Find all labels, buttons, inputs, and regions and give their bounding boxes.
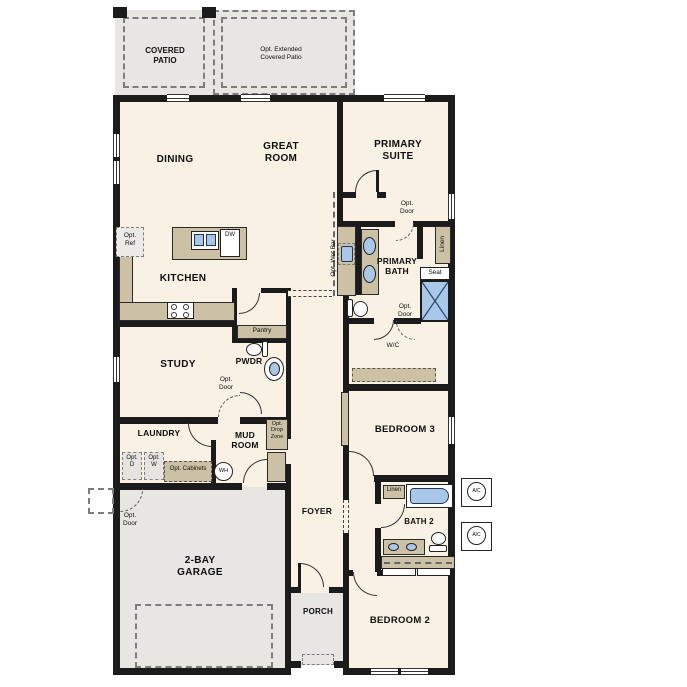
label-pantry: Pantry — [238, 327, 286, 335]
label-opt-door: Opt. Door — [392, 200, 422, 216]
window — [113, 357, 120, 382]
mud-room-bench — [267, 452, 286, 482]
room-label-foyer: FOYER — [287, 506, 347, 516]
toilet — [431, 532, 446, 545]
wall — [343, 668, 455, 675]
floor-plan: DW WH A/C A/C — [0, 0, 687, 687]
room-label-study: STUDY — [143, 359, 213, 371]
wall — [343, 384, 455, 391]
toilet — [353, 301, 368, 317]
wall — [113, 320, 235, 327]
wall — [377, 192, 386, 198]
wall — [334, 661, 345, 668]
wall — [113, 668, 291, 675]
wall — [286, 464, 291, 485]
wall — [374, 475, 455, 482]
room-label-bath-2: BATH 2 — [394, 517, 444, 527]
water-heater-label: WH — [219, 468, 228, 474]
wall — [417, 227, 423, 259]
garage-opt-outline — [135, 604, 273, 668]
label-opt-door: Opt. Door — [390, 303, 420, 319]
label-opt-wet-bar: Opt. Wet Bar — [330, 228, 338, 288]
room-label-great-room: GREAT ROOM — [246, 141, 316, 165]
wall — [343, 192, 356, 198]
label-opt-cabinets: Opt. Cabinets — [165, 466, 211, 473]
shower — [420, 280, 450, 322]
label-opt-door: Opt. Door — [114, 512, 146, 528]
door-leaf — [376, 170, 379, 192]
cooktop — [167, 302, 194, 319]
label-opt-washer: Opt. W — [144, 455, 164, 469]
closet-rod — [384, 562, 452, 564]
label-opt-ref: Opt. Ref — [118, 232, 142, 248]
room-label-dining: DINING — [140, 154, 210, 166]
window — [371, 668, 398, 675]
closet-slider-door — [417, 568, 451, 576]
window — [448, 194, 455, 219]
room-label-bedroom-2: BEDROOM 2 — [353, 615, 447, 626]
bathtub-basin — [410, 488, 449, 504]
label-opt-dryer: Opt. D — [122, 455, 142, 469]
ac-unit-icon: A/C — [467, 482, 486, 501]
wall — [337, 95, 343, 227]
sink-basin — [206, 234, 216, 246]
closet-shelf — [352, 368, 436, 382]
room-label-covered-patio: COVERED PATIO — [130, 46, 200, 65]
window — [401, 668, 428, 675]
room-label-bedroom-3: BEDROOM 3 — [358, 424, 452, 435]
window — [113, 161, 120, 184]
wall — [375, 482, 381, 504]
window — [167, 94, 189, 102]
toilet — [246, 343, 262, 356]
dishwasher-label: DW — [220, 232, 240, 239]
vanity-sink — [406, 543, 417, 551]
wall — [343, 533, 349, 675]
vanity-sink — [363, 237, 376, 255]
window — [384, 94, 425, 102]
shower-glass — [422, 282, 448, 320]
room-label-opt-extended-patio: Opt. Extended Covered Patio — [233, 46, 329, 62]
vanity-sink — [388, 543, 399, 551]
sink-basin — [194, 234, 204, 246]
room-label-primary-suite: PRIMARY SUITE — [363, 139, 433, 163]
wall — [286, 288, 291, 417]
cased-opening — [343, 500, 349, 533]
toilet — [262, 341, 268, 357]
patio-post — [113, 7, 127, 18]
opt-door-landing-outline — [88, 488, 114, 514]
patio-post — [202, 7, 216, 18]
label-opt-door: Opt. Door — [210, 376, 242, 392]
cased-opening — [288, 290, 332, 297]
room-label-mud-room: MUD ROOM — [219, 430, 271, 450]
label-linen: Linen — [439, 224, 447, 264]
label-opt-drop-zone: Opt. Drop Zone — [266, 421, 288, 440]
ac-label: A/C — [472, 489, 480, 495]
sink-basin — [269, 362, 280, 376]
room-label-laundry: LAUNDRY — [122, 428, 196, 438]
door-leaf — [298, 563, 301, 588]
wall — [291, 661, 301, 668]
room-label-garage: 2-BAY GARAGE — [160, 555, 240, 579]
ac-unit-icon: A/C — [467, 526, 486, 545]
label-wc: W/C — [379, 342, 407, 350]
window — [113, 134, 120, 157]
porch-step — [302, 654, 334, 665]
wall — [343, 570, 353, 576]
toilet — [429, 545, 447, 552]
label-linen: Linen — [383, 487, 405, 494]
room-label-kitchen: KITCHEN — [148, 273, 218, 285]
window — [241, 94, 270, 102]
wet-bar-sink — [341, 246, 353, 262]
wall — [329, 587, 345, 593]
closet-shelf — [341, 392, 349, 446]
room-label-porch: PORCH — [292, 607, 344, 617]
closet-slider-door — [382, 568, 416, 576]
room-label-pwdr: PWDR — [230, 356, 268, 366]
water-heater: WH — [214, 462, 233, 481]
kitchen-sink — [191, 231, 219, 250]
label-seat: Seat — [420, 269, 450, 277]
ac-label: A/C — [472, 533, 480, 539]
wall — [343, 475, 349, 482]
